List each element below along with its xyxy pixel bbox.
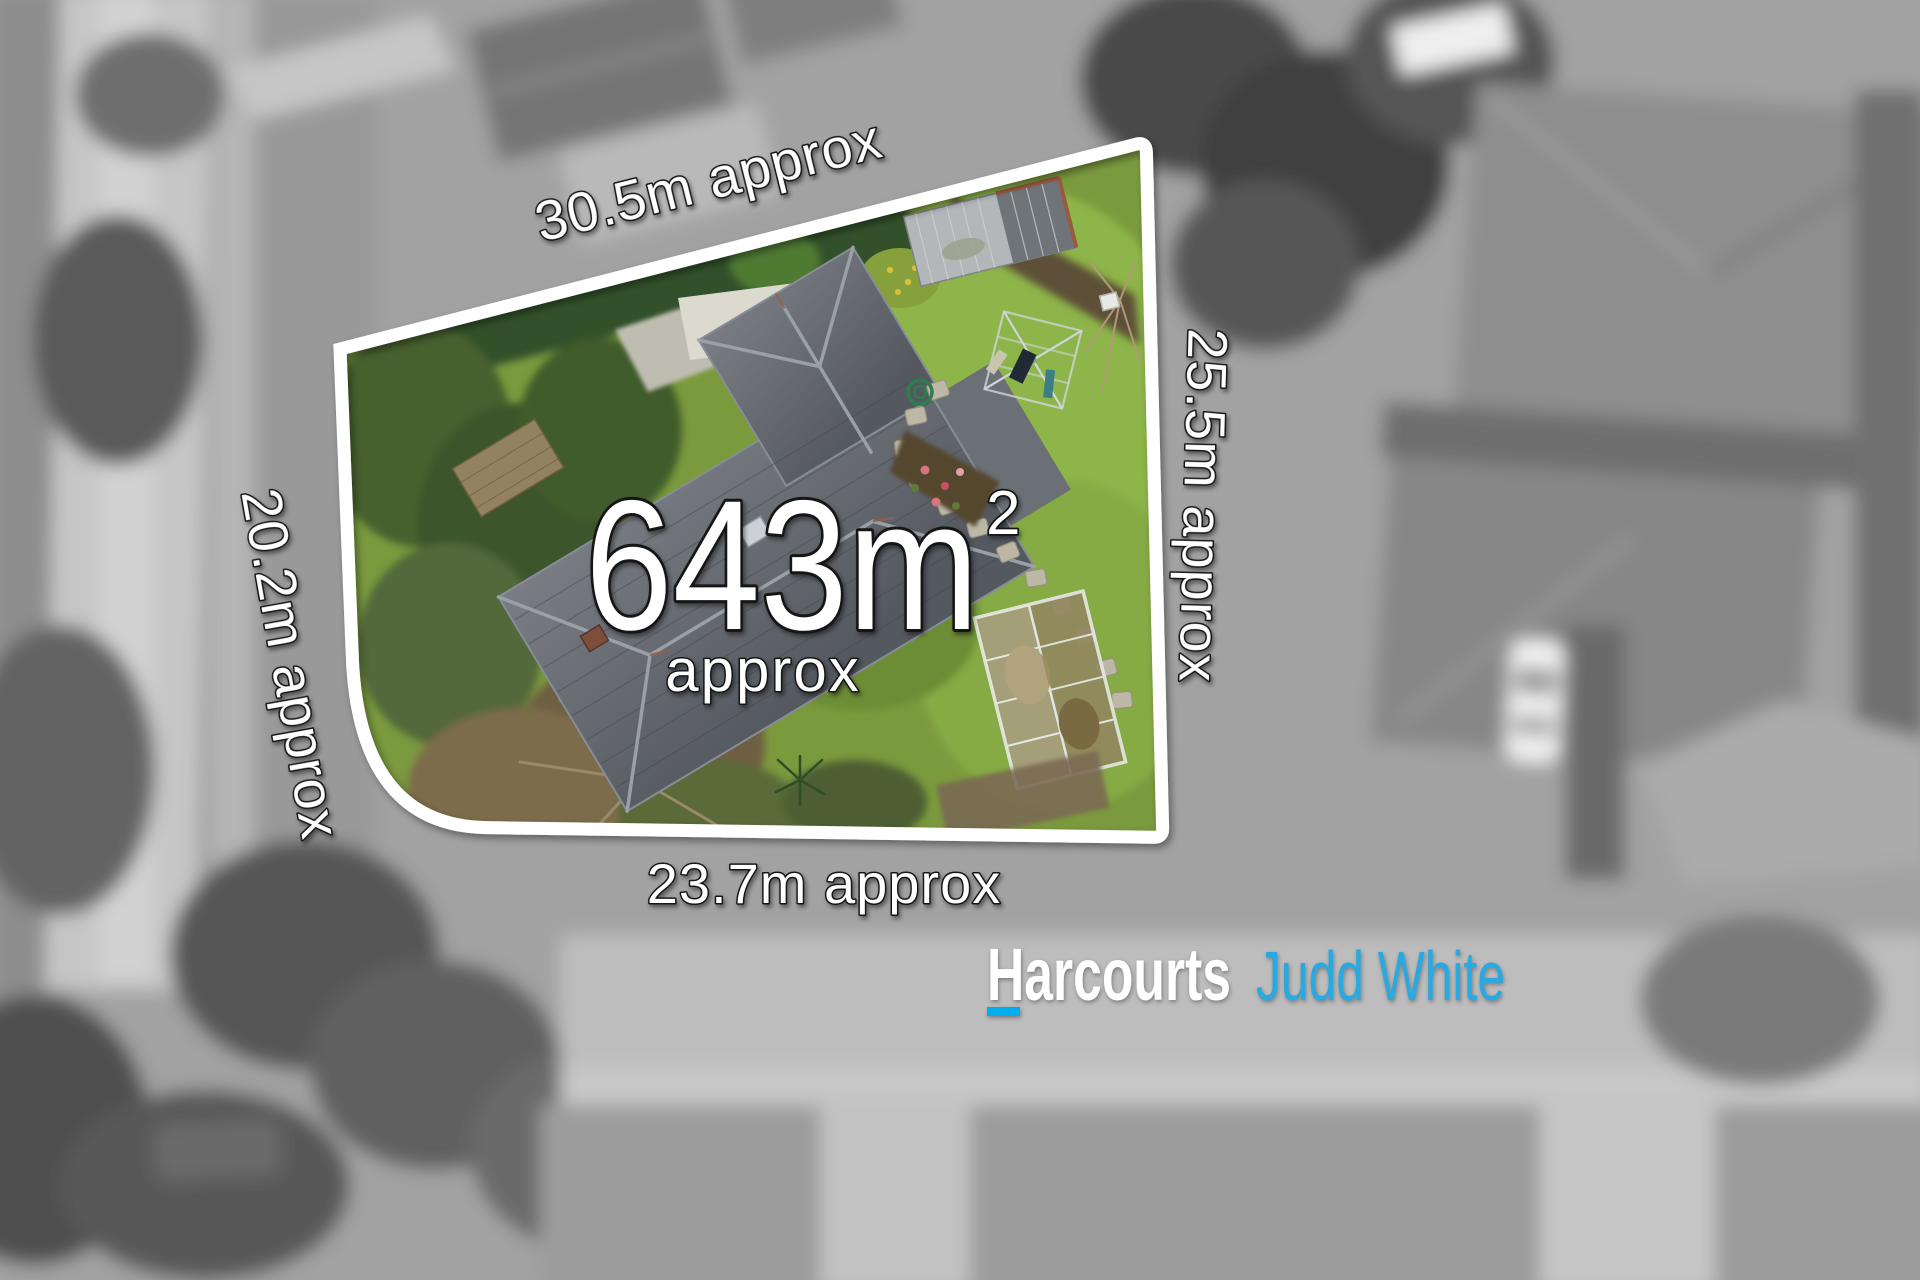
right-dark-hedge (1565, 625, 1625, 880)
neighbour-roof-large (1454, 82, 1920, 444)
area-qualifier: approx (665, 637, 860, 704)
stepping-stone (1111, 691, 1132, 709)
aerial-photo: 30.5m approx 25.5m approx 20.2m approx 2… (0, 0, 1920, 1280)
dimension-label-right: 25.5m approx (1167, 328, 1239, 684)
bottom-driveway-apron (820, 1095, 970, 1280)
dark-car (154, 1119, 282, 1181)
stepping-stone (1025, 568, 1047, 587)
right-hedge (1855, 90, 1920, 810)
white-chair (1100, 292, 1120, 311)
property-listing-image: 30.5m approx 25.5m approx 20.2m approx 2… (0, 0, 1920, 1280)
brand-underline (987, 1007, 1020, 1016)
area-label: 643m 2 approx (585, 463, 1020, 704)
white-car (1505, 639, 1565, 764)
left-tree (33, 215, 203, 465)
left-sidewalk (212, 0, 257, 950)
bottom-right-shrub (1640, 915, 1880, 1085)
brand-name: Harcourts (987, 933, 1231, 1016)
brand-office: Judd White (1256, 937, 1505, 1015)
stepping-stone (905, 406, 928, 426)
bottom-left-tree (60, 1090, 350, 1280)
top-right-tree (1170, 180, 1360, 350)
dimension-label-bottom: 23.7m approx (647, 852, 1001, 915)
area-exponent: 2 (986, 479, 1020, 548)
tree-over-road (75, 33, 225, 157)
bottom-driveway-apron (1540, 1085, 1715, 1280)
